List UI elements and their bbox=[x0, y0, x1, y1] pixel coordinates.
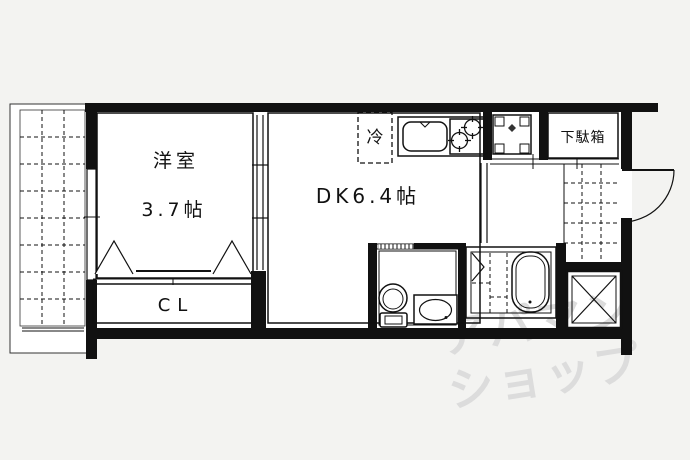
vanity-basin bbox=[414, 295, 457, 324]
wall-bottom bbox=[86, 328, 632, 339]
balcony-window bbox=[87, 169, 96, 280]
floor-plan-canvas: アパマン ショップ bbox=[0, 0, 690, 460]
wall-washroom-left bbox=[368, 243, 377, 328]
wall-top bbox=[85, 103, 658, 112]
wall-stub-left bbox=[86, 339, 97, 359]
wall-left-upper bbox=[86, 103, 97, 169]
wall-laundry-divider bbox=[539, 112, 548, 160]
floor-plan-image: アパマン ショップ bbox=[0, 0, 690, 460]
western-room-name: 洋室 bbox=[153, 150, 199, 172]
dk-label: DK6.4帖 bbox=[316, 184, 420, 208]
western-room-size: 3.7帖 bbox=[141, 199, 206, 221]
basin-drain bbox=[445, 316, 448, 319]
wall-washroom-bath bbox=[458, 243, 466, 328]
refrigerator-label: 冷 bbox=[367, 128, 384, 148]
wall-right-upper bbox=[621, 103, 632, 169]
wall-right-lower bbox=[621, 218, 632, 355]
washroom-sliding-door bbox=[378, 244, 414, 249]
bathtub-drain bbox=[529, 301, 532, 304]
balcony-floor bbox=[10, 104, 88, 353]
shoe-cabinet: 下駄箱 bbox=[548, 113, 618, 158]
toilet-tank bbox=[380, 313, 407, 327]
wall-entry-bottom bbox=[560, 262, 626, 271]
closet-label: CL bbox=[158, 295, 195, 316]
shoe-cabinet-label: 下駄箱 bbox=[561, 130, 606, 146]
